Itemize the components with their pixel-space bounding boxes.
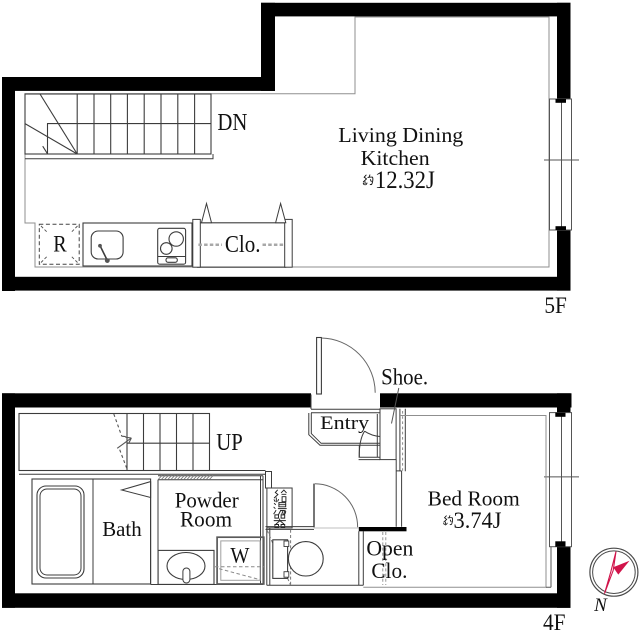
- svg-text:Bed Room: Bed Room: [428, 487, 520, 511]
- svg-text:Bath: Bath: [102, 517, 142, 541]
- svg-text:N: N: [593, 595, 608, 616]
- svg-text:Open: Open: [366, 536, 413, 561]
- svg-text:Clo.: Clo.: [371, 558, 407, 583]
- svg-text:Clo.: Clo.: [225, 232, 261, 258]
- svg-text:R: R: [53, 232, 67, 257]
- svg-text:Entry: Entry: [320, 414, 370, 434]
- svg-text:UP: UP: [216, 430, 243, 456]
- svg-text:Shoe.: Shoe.: [381, 364, 428, 389]
- svg-text:Living Dining: Living Dining: [338, 123, 464, 147]
- svg-text:4F: 4F: [543, 610, 566, 635]
- svg-text:W: W: [230, 543, 250, 568]
- svg-text:12.32J: 12.32J: [375, 167, 435, 194]
- svg-text:Room: Room: [180, 507, 232, 532]
- svg-text:5F: 5F: [544, 293, 567, 318]
- svg-text:DN: DN: [217, 110, 247, 136]
- svg-text:3.74J: 3.74J: [454, 508, 502, 534]
